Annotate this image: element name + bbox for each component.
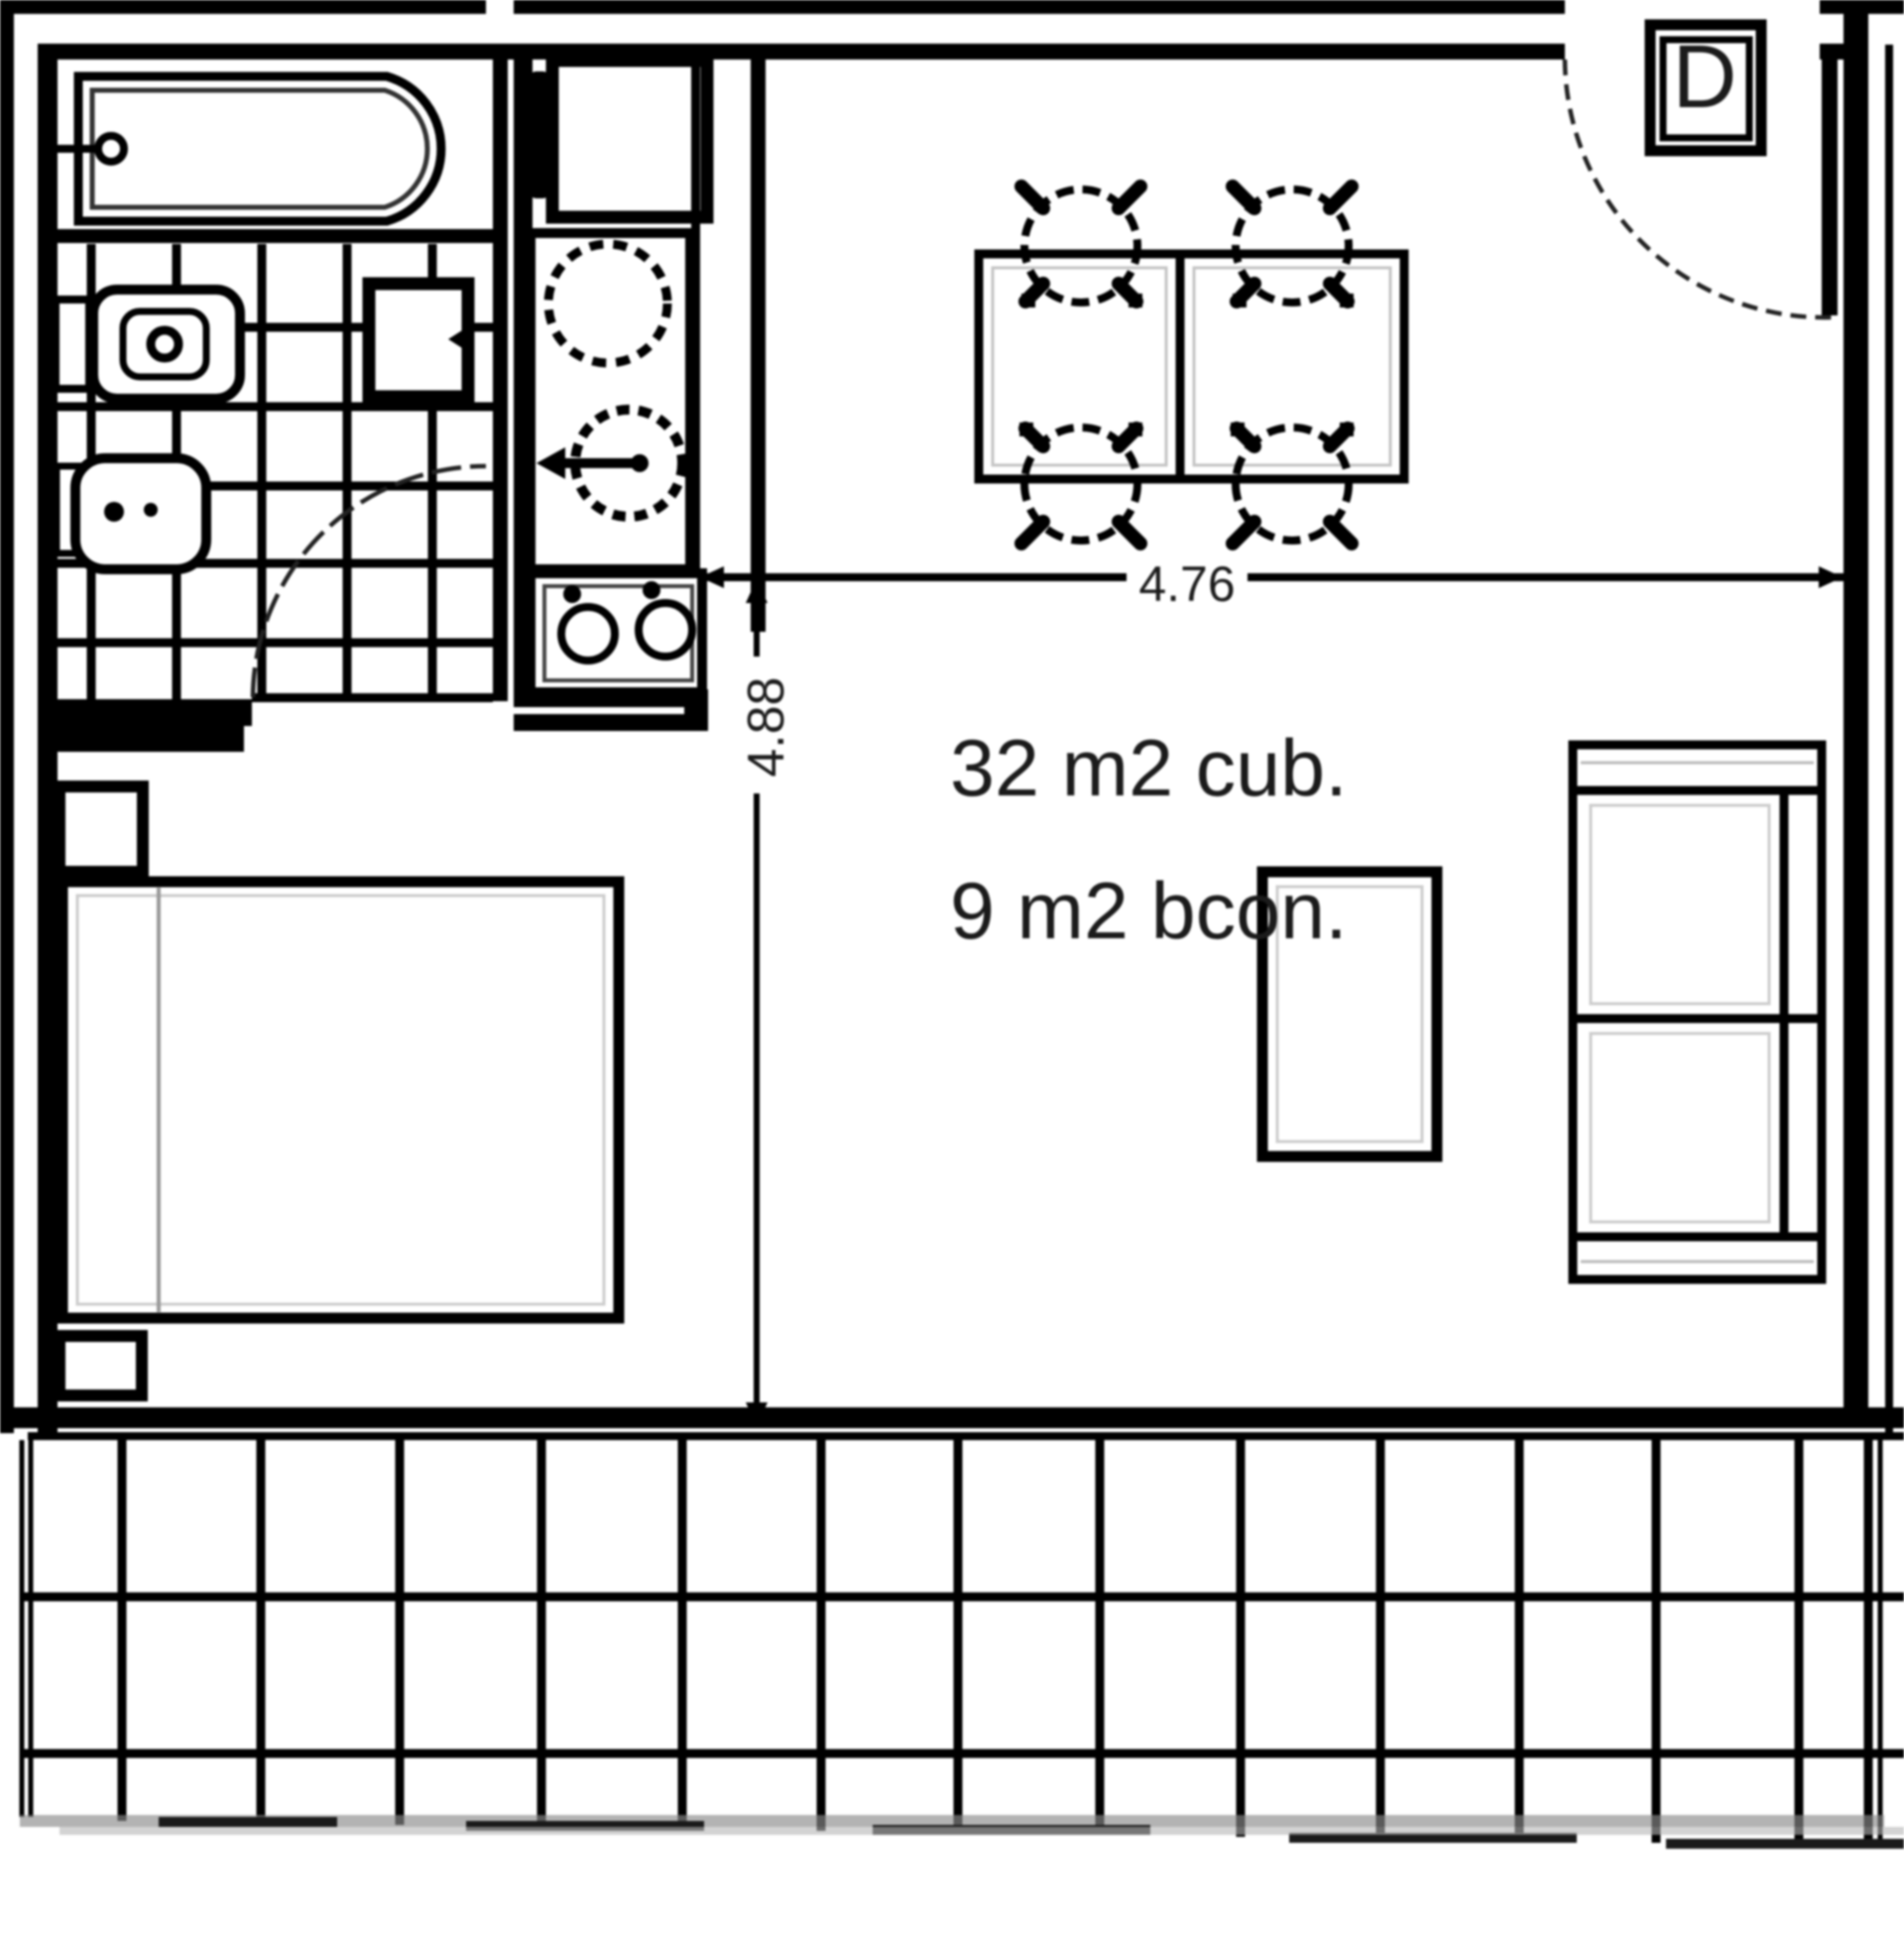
svg-text:D: D bbox=[1673, 28, 1737, 127]
svg-text:4.88: 4.88 bbox=[738, 676, 795, 777]
svg-text:4.76: 4.76 bbox=[1138, 556, 1235, 612]
svg-text:32 m2 cub.: 32 m2 cub. bbox=[950, 724, 1348, 813]
svg-text:9 m2 bcon.: 9 m2 bcon. bbox=[950, 867, 1348, 956]
